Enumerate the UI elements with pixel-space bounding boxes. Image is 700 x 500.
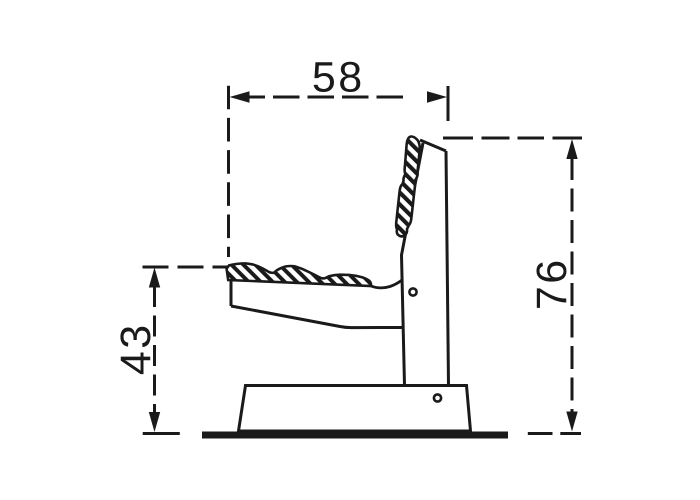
svg-text:43: 43 <box>112 322 160 375</box>
svg-text:58: 58 <box>312 54 365 102</box>
svg-text:76: 76 <box>528 257 576 310</box>
